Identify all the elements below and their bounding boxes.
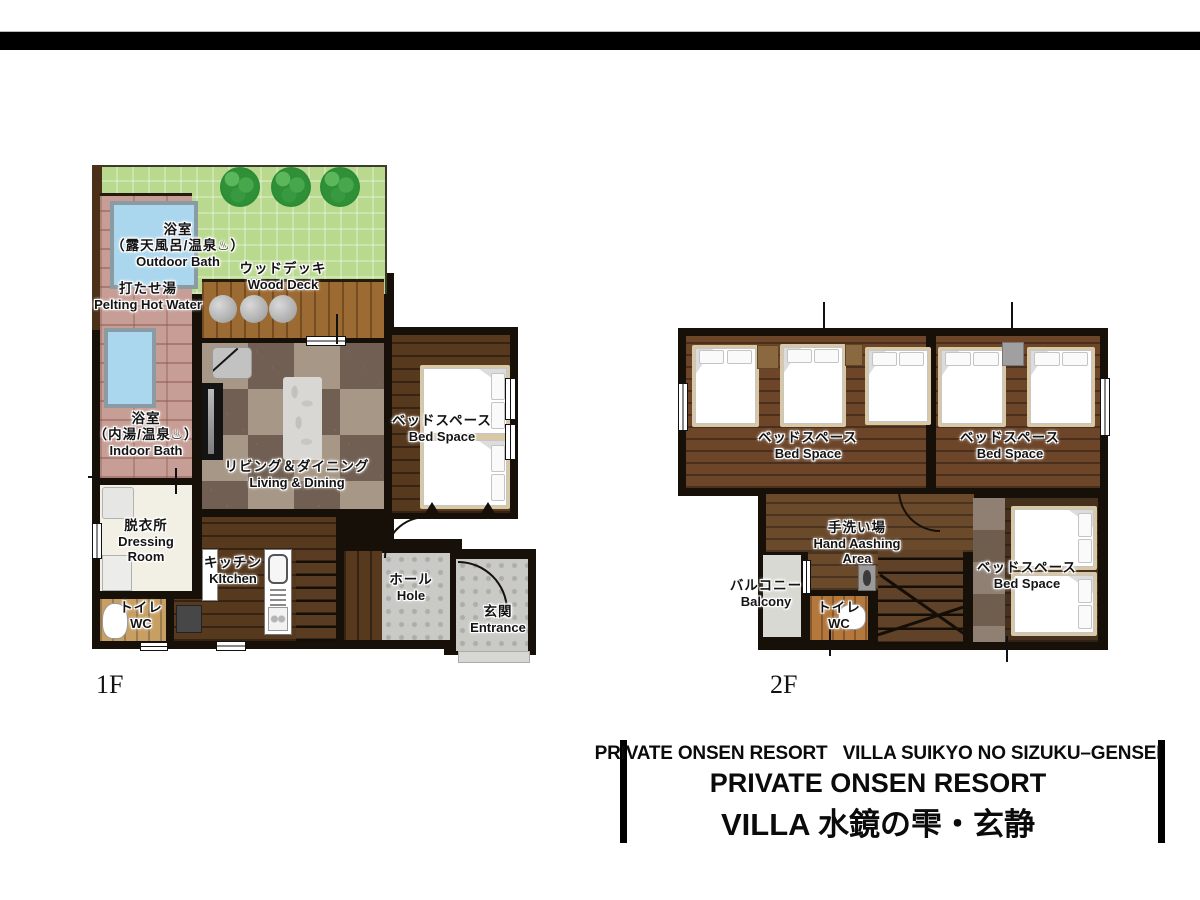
window-marker [140, 642, 168, 651]
bed-icon [938, 347, 1006, 427]
label-balcony: バルコニー Balcony [730, 578, 802, 609]
label-line: Area [814, 551, 901, 566]
bed-icon [1027, 347, 1095, 427]
label-line: 玄関 [470, 604, 526, 620]
bed-icon [780, 344, 846, 427]
window-marker [505, 424, 516, 460]
label-line: 浴室 [94, 411, 199, 427]
label-line: WC [119, 616, 163, 631]
dimension-tick [829, 628, 831, 656]
label-line: Pelting Hot Water [94, 297, 202, 312]
top-black-bar [0, 31, 1200, 50]
dimension-tick [88, 476, 100, 478]
label-line: キッチン [204, 555, 262, 571]
label-line: 脱衣所 [118, 518, 174, 534]
label-line: 手洗い場 [814, 520, 901, 536]
label-line: ホール [389, 572, 433, 588]
refrigerator-icon [176, 605, 202, 633]
label-line: Room [118, 549, 174, 564]
hall-wood-floor [344, 551, 382, 640]
stairs-1f [296, 551, 336, 641]
label-line: ベッドスペース [758, 430, 858, 446]
indoor-bath-pool [104, 328, 156, 408]
label-line: トイレ [119, 600, 163, 616]
nightstand-icon [1002, 342, 1024, 366]
hand-wash-sink-icon [858, 565, 876, 591]
window-marker [505, 378, 516, 420]
label-line: Hole [389, 588, 433, 603]
door-fold-mark [424, 502, 440, 515]
label-line: Balcony [730, 594, 802, 609]
tree-icon [220, 167, 260, 207]
window-marker [1100, 378, 1110, 436]
label-line: （内湯/温泉♨） [94, 427, 199, 443]
rug [283, 377, 322, 460]
dimension-tick [1006, 636, 1008, 662]
label-line: Bed Space [758, 446, 858, 461]
label-line: トイレ [817, 600, 861, 616]
table [212, 347, 252, 379]
stepping-stone-icon [240, 295, 268, 323]
kitchen-grill-icon [270, 588, 286, 606]
label-entrance: 玄関 Entrance [470, 604, 526, 635]
stepping-stone-icon [269, 295, 297, 323]
nightstand-icon [845, 344, 863, 366]
floor-plan-page: 浴室 （露天風呂/温泉♨） Outdoor Bath 打たせ湯 Pelting … [0, 0, 1200, 900]
label-indoor-bath: 浴室 （内湯/温泉♨） Indoor Bath [94, 411, 199, 458]
dimension-tick [336, 314, 338, 344]
kitchen-sink-icon [268, 554, 288, 584]
label-line: Entrance [470, 620, 526, 635]
bed-icon [420, 437, 510, 509]
label-wc-2f: トイレ WC [817, 600, 861, 631]
window-marker [92, 523, 102, 559]
label-bed-space-2f-a: ベッドスペース Bed Space [758, 430, 858, 461]
nightstand-icon [757, 345, 779, 369]
label-bed-space-1f: ベッドスペース Bed Space [392, 413, 492, 444]
door-fold-mark [352, 528, 368, 541]
label-bed-space-2f-b: ベッドスペース Bed Space [960, 430, 1060, 461]
window-marker [678, 383, 688, 431]
label-line: ベッドスペース [392, 413, 492, 429]
title-line-jp: VILLA 水鏡の雫・玄静 [721, 799, 1035, 844]
entrance-step [458, 651, 530, 663]
label-line: Indoor Bath [94, 443, 199, 458]
label-line: バルコニー [730, 578, 802, 594]
label-bed-space-2f-c: ベッドスペース Bed Space [977, 560, 1077, 591]
kitchen-island [264, 549, 292, 635]
label-kitchen: キッチン KItchen [204, 555, 262, 586]
window-marker [216, 641, 246, 651]
dimension-tick [1011, 302, 1013, 332]
label-wc-1f: トイレ WC [119, 600, 163, 631]
label-line: Dressing [118, 534, 174, 549]
tree-icon [320, 167, 360, 207]
label-living-dining: リビング＆ダイニング Living & Dining [225, 459, 370, 490]
label-line: Bed Space [960, 446, 1060, 461]
title-line-en: PRIVATE ONSEN RESORT [710, 768, 1047, 799]
label-line: 打たせ湯 [94, 281, 202, 297]
bed-icon [692, 345, 759, 427]
label-hall: ホール Hole [389, 572, 433, 603]
window-marker [306, 336, 346, 346]
label-line: Bed Space [977, 576, 1077, 591]
label-hand-washing: 手洗い場 Hand Aashing Area [814, 520, 901, 567]
label-line: KItchen [204, 571, 262, 586]
stepping-stone-icon [209, 295, 237, 323]
label-line: ベッドスペース [960, 430, 1060, 446]
floor-label-2f: 2F [770, 670, 797, 700]
window-marker [802, 560, 811, 594]
label-wood-deck: ウッドデッキ Wood Deck [240, 261, 327, 292]
label-line: Bed Space [392, 429, 492, 444]
tv-cabinet [202, 383, 223, 460]
title-subtitle: PRIVATE ONSEN RESORT VILLA SUIKYO NO SIZ… [595, 743, 1162, 765]
label-line: ウッドデッキ [240, 261, 327, 277]
label-line: ベッドスペース [977, 560, 1077, 576]
label-pelting: 打たせ湯 Pelting Hot Water [94, 281, 202, 312]
label-line: 浴室 [111, 222, 245, 238]
door-fold-mark [480, 502, 496, 515]
dimension-tick [823, 302, 825, 332]
label-dressing-room: 脱衣所 Dressing Room [118, 518, 174, 565]
dimension-tick [175, 468, 177, 494]
label-line: Outdoor Bath [111, 254, 245, 269]
washing-machine-icon [102, 487, 134, 519]
label-line: （露天風呂/温泉♨） [111, 238, 245, 254]
label-line: WC [817, 616, 861, 631]
tree-icon [271, 167, 311, 207]
bed-icon [865, 347, 931, 425]
label-line: Wood Deck [240, 277, 327, 292]
label-line: リビング＆ダイニング [225, 459, 370, 475]
floor-label-1f: 1F [96, 670, 123, 700]
kitchen-stove-icon [268, 607, 288, 631]
label-line: Living & Dining [225, 475, 370, 490]
label-outdoor-bath: 浴室 （露天風呂/温泉♨） Outdoor Bath [111, 222, 245, 269]
label-line: Hand Aashing [814, 536, 901, 551]
